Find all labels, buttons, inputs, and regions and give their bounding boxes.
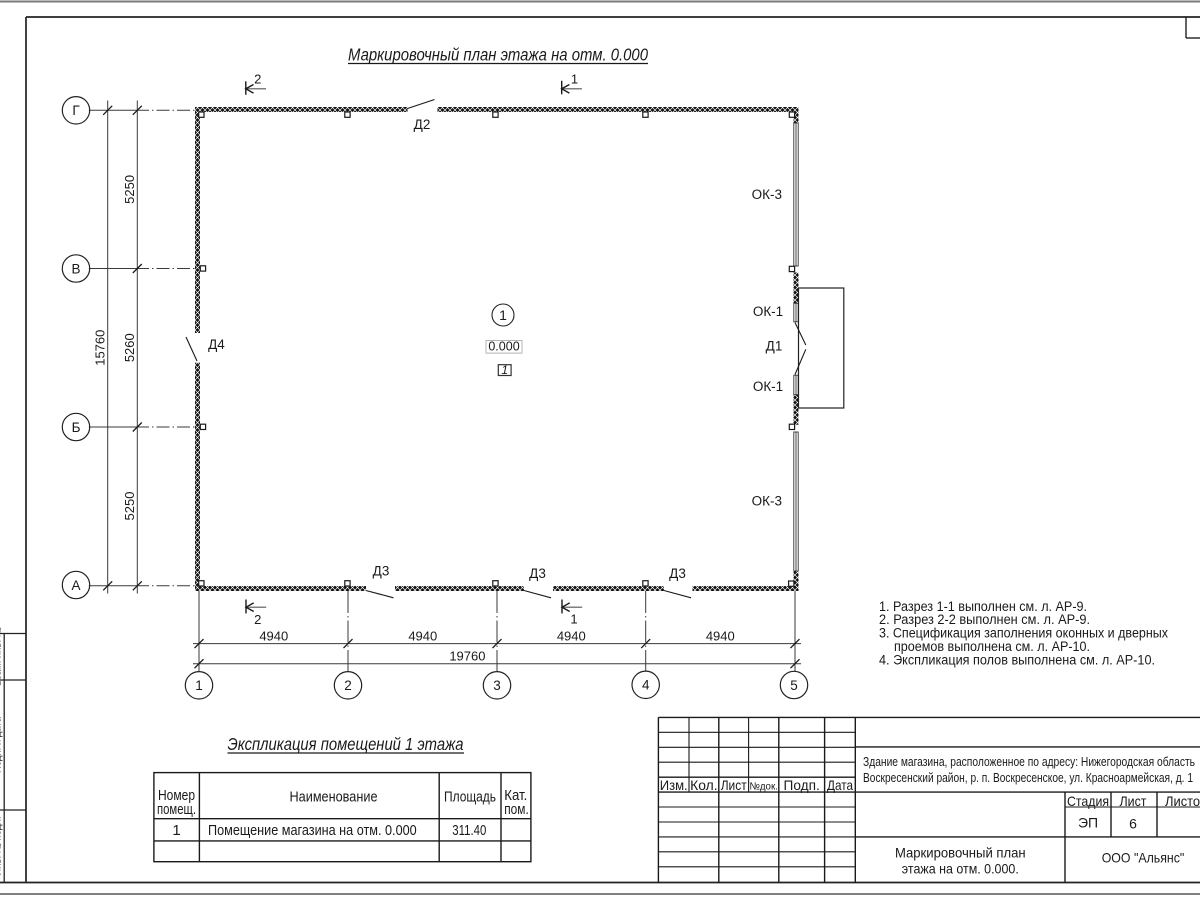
svg-text:А: А <box>71 578 80 593</box>
svg-text:5: 5 <box>790 678 798 693</box>
svg-text:ЭП: ЭП <box>1078 815 1098 831</box>
svg-text:Подп.: Подп. <box>784 777 820 793</box>
svg-text:Г: Г <box>72 103 80 118</box>
svg-text:Листов: Листов <box>1165 793 1200 809</box>
svg-text:4. Экспликация полов выполнена: 4. Экспликация полов выполнена см. л. АР… <box>879 652 1155 667</box>
svg-text:2: 2 <box>254 72 261 87</box>
svg-text:пом.: пом. <box>504 801 529 818</box>
svg-text:помещ.: помещ. <box>157 801 196 818</box>
svg-text:3: 3 <box>493 678 501 693</box>
svg-text:4940: 4940 <box>259 629 288 644</box>
svg-text:Подп. и дата: Подп. и дата <box>0 716 4 773</box>
svg-text:Д2: Д2 <box>414 117 431 132</box>
svg-text:Экспликация помещений 1 этажа: Экспликация помещений 1 этажа <box>228 734 464 754</box>
svg-text:Лист: Лист <box>1120 793 1148 809</box>
svg-text:4940: 4940 <box>408 629 437 644</box>
svg-text:4940: 4940 <box>557 629 586 644</box>
svg-text:Помещение магазина на отм. 0.0: Помещение магазина на отм. 0.000 <box>208 822 417 839</box>
svg-text:Наименование: Наименование <box>290 789 378 806</box>
svg-text:Инв. № подл.: Инв. № подл. <box>0 816 4 875</box>
svg-text:1: 1 <box>570 612 577 627</box>
svg-text:этажа на отм. 0.000.: этажа на отм. 0.000. <box>902 861 1019 877</box>
svg-text:Дата: Дата <box>827 777 853 793</box>
svg-text:311.40: 311.40 <box>452 822 486 839</box>
svg-text:19760: 19760 <box>449 649 485 664</box>
svg-text:Лист: Лист <box>721 777 748 793</box>
svg-text:1: 1 <box>172 822 180 839</box>
svg-text:Маркировочный план этажа на от: Маркировочный план этажа на отм. 0.000 <box>348 45 648 65</box>
svg-text:Кол.: Кол. <box>690 777 718 793</box>
svg-text:ОК-1: ОК-1 <box>753 379 783 394</box>
svg-text:Д3: Д3 <box>529 566 546 581</box>
svg-text:Д1: Д1 <box>766 339 783 354</box>
svg-text:0.000: 0.000 <box>488 340 519 354</box>
svg-text:ОК-3: ОК-3 <box>752 493 782 508</box>
svg-text:Маркировочный план: Маркировочный план <box>895 845 1026 861</box>
svg-text:1: 1 <box>571 72 578 87</box>
svg-text:Д4: Д4 <box>208 337 225 352</box>
svg-text:5260: 5260 <box>122 333 137 362</box>
svg-text:2: 2 <box>254 612 261 627</box>
svg-text:Б: Б <box>72 420 81 435</box>
svg-text:Д3: Д3 <box>669 566 686 581</box>
svg-text:4940: 4940 <box>706 629 735 644</box>
svg-text:Изм.: Изм. <box>660 777 688 793</box>
svg-text:5250: 5250 <box>122 175 137 204</box>
svg-text:6: 6 <box>1129 816 1137 832</box>
svg-text:1: 1 <box>195 678 203 693</box>
svg-text:ОК-1: ОК-1 <box>753 304 783 319</box>
svg-text:Взам. инв. №: Взам. инв. № <box>0 627 4 686</box>
svg-text:4: 4 <box>642 678 650 693</box>
svg-text:Площадь: Площадь <box>444 789 496 806</box>
svg-text:Д3: Д3 <box>373 564 390 579</box>
svg-text:15760: 15760 <box>93 330 108 366</box>
svg-text:ООО "Альянс": ООО "Альянс" <box>1102 850 1185 866</box>
svg-text:Стадия: Стадия <box>1067 793 1109 809</box>
svg-text:№док.: №док. <box>749 780 778 792</box>
svg-text:2: 2 <box>344 678 352 693</box>
svg-text:5250: 5250 <box>122 492 137 521</box>
svg-text:В: В <box>71 261 80 276</box>
svg-text:Воскресенский район, р. п. Вос: Воскресенский район, р. п. Воскресенское… <box>863 770 1193 785</box>
svg-text:1: 1 <box>499 307 507 323</box>
svg-text:Здание магазина, расположенное: Здание магазина, расположенное по адресу… <box>863 754 1195 769</box>
svg-text:1: 1 <box>501 363 508 377</box>
svg-text:ОК-3: ОК-3 <box>752 187 782 202</box>
